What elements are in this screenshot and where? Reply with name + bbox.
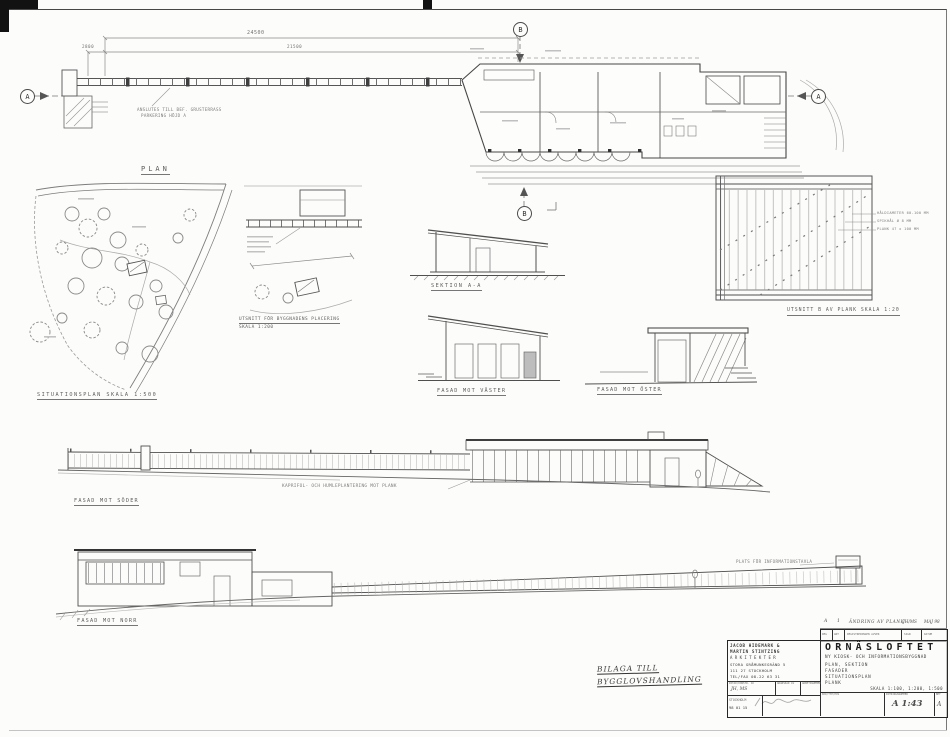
- kod-label: KOD/TYP/POS: [822, 694, 839, 697]
- content-line: PLANK: [825, 681, 842, 685]
- section-marker-a-right: A: [811, 89, 826, 104]
- plank-note-2: SPIKHÅL Ø 8 MM: [877, 220, 912, 224]
- project-subtitle: NY KIOSK- OCH INFORMATIONSBYGGNAD: [825, 656, 927, 660]
- building-plan: [462, 48, 843, 184]
- revision-header-ant: ANT: [834, 633, 839, 636]
- label-situationsplan: SITUATIONSPLAN SKALA 1:500: [37, 393, 157, 400]
- label-plank-detalj: UTSNITT B AV PLANK SKALA 1:20: [787, 309, 900, 316]
- label-sektion: SEKTION A-A: [431, 284, 482, 291]
- revision-avser: ÄNDRING AV PLANK: [849, 620, 904, 624]
- architect-line: STORA GRÅMUNKEGRÄND 5: [730, 663, 786, 667]
- dim-total: 24500: [247, 31, 265, 36]
- architect-line: JACOB HIDEMARK &: [730, 644, 780, 648]
- revision-header-reg: REG: [822, 633, 827, 636]
- scan-artifact-top-left-v: [0, 0, 9, 32]
- label-fasad-vaster: FASAD MOT VÄSTER: [437, 389, 506, 396]
- placement-detail: [244, 186, 362, 314]
- revision-divider: [844, 629, 845, 640]
- bet-label: BET: [936, 694, 941, 697]
- section-marker-b-mid: B: [517, 206, 532, 221]
- revision-ant: 1: [837, 620, 840, 625]
- plan-dimension-lines: [86, 36, 520, 76]
- label-kaprifol: KAPRIFOL- OCH HUMLEPLANTERING MOT PLANK: [282, 485, 397, 489]
- revision-divider: [921, 629, 922, 640]
- annex-note-line1: BILAGA TILL: [597, 664, 659, 674]
- label-fasad-oster: FASAD MOT ÖSTER: [597, 388, 662, 395]
- ritningsnummer-label: RITNINGSNUMMER: [886, 694, 908, 697]
- label-placering-2: SKALA 1:200: [239, 326, 274, 330]
- scan-artifact-top-center: [423, 0, 432, 9]
- site-plan: [30, 183, 232, 392]
- revision-header-sign: SIGN: [904, 633, 910, 636]
- title-block-line: [884, 692, 885, 716]
- marker-letter: B: [518, 26, 522, 34]
- title-block-line: [775, 681, 776, 695]
- architect-line: MARTIN STINTZING: [730, 650, 780, 654]
- header-granskad: GRANSKAD AV: [777, 683, 794, 686]
- plan-note-2: PARKERING HÖJD A: [141, 114, 186, 118]
- plank-note-1: HÅLDIAMETER 60-100 MM: [877, 212, 929, 216]
- dim-mid: 21500: [287, 45, 302, 49]
- architect-line: ARKITEKTER: [730, 656, 778, 660]
- scale-line: SKALA 1:100, 1:200, 1:500: [838, 687, 943, 691]
- section-marker-b-top: B: [513, 22, 528, 37]
- section-a-a: [410, 230, 565, 280]
- revision-header-datum: DATUM: [924, 633, 932, 636]
- title-block-line: [727, 695, 820, 696]
- plank-note-3: PLANK 47 x 100 MM: [877, 228, 919, 232]
- revision-reg: A: [824, 620, 827, 625]
- plank-detail: [716, 176, 876, 300]
- revision-header-avser: REGISTRERINGEN AVSER: [847, 633, 879, 636]
- label-placering-1: UTSNITT FÖR BYGGNADENS PLACERING: [239, 318, 340, 324]
- facade-east: [585, 328, 757, 384]
- plank-plan: [62, 70, 462, 128]
- content-line: FASADER: [825, 669, 848, 673]
- bet-value: A: [937, 702, 941, 708]
- label-infotavla: PLATS FÖR INFORMATIONSTAVLA: [736, 560, 812, 564]
- ort-value: STOCKHOLM: [729, 699, 746, 702]
- revision-datum: MAJ 98: [924, 620, 940, 624]
- facade-west: [418, 316, 560, 381]
- label-fasad-norr: FASAD MOT NORR: [77, 619, 138, 626]
- content-line: PLAN, SEKTION: [825, 663, 868, 667]
- ritningsnummer-value: A 1:43: [892, 700, 922, 709]
- facade-south: [58, 432, 770, 492]
- revision-divider: [901, 629, 902, 640]
- section-marker-a-left: A: [20, 89, 35, 104]
- title-block-divider-main: [820, 640, 821, 716]
- datum-value: 98 01 15: [729, 706, 747, 710]
- plan-note-1: ANSLUTES TILL BEF. GRUSTERRASS: [137, 108, 222, 112]
- marker-letter: A: [25, 93, 29, 101]
- title-block-line: [762, 695, 763, 716]
- label-plan: PLAN: [141, 166, 170, 175]
- drawing-sheet: { "drawing": { "labels": { "plan": "PLAN…: [0, 0, 950, 737]
- title-block-line: [800, 681, 801, 695]
- label-fasad-soder: FASAD MOT SÖDER: [74, 499, 139, 506]
- ritad-value: JH, MS: [731, 688, 747, 693]
- content-line: SITUATIONSPLAN: [825, 675, 872, 679]
- marker-letter: B: [522, 210, 526, 218]
- project-title: ORNÄSLOFTET: [825, 643, 937, 653]
- header-ritad: RITAD/KONSTR. AV: [729, 683, 754, 686]
- revision-sign: JH/MS: [903, 620, 917, 624]
- architect-line: TEL/FAX 08-22 63 31: [730, 675, 780, 679]
- header-arbetsnummer: ARBETSNUMMER: [802, 683, 821, 686]
- dim-left: 2800: [82, 45, 94, 49]
- revision-divider: [832, 629, 833, 640]
- title-block-line: [934, 692, 935, 716]
- architect-line: 111 27 STOCKHOLM: [730, 669, 772, 673]
- marker-letter: A: [816, 93, 820, 101]
